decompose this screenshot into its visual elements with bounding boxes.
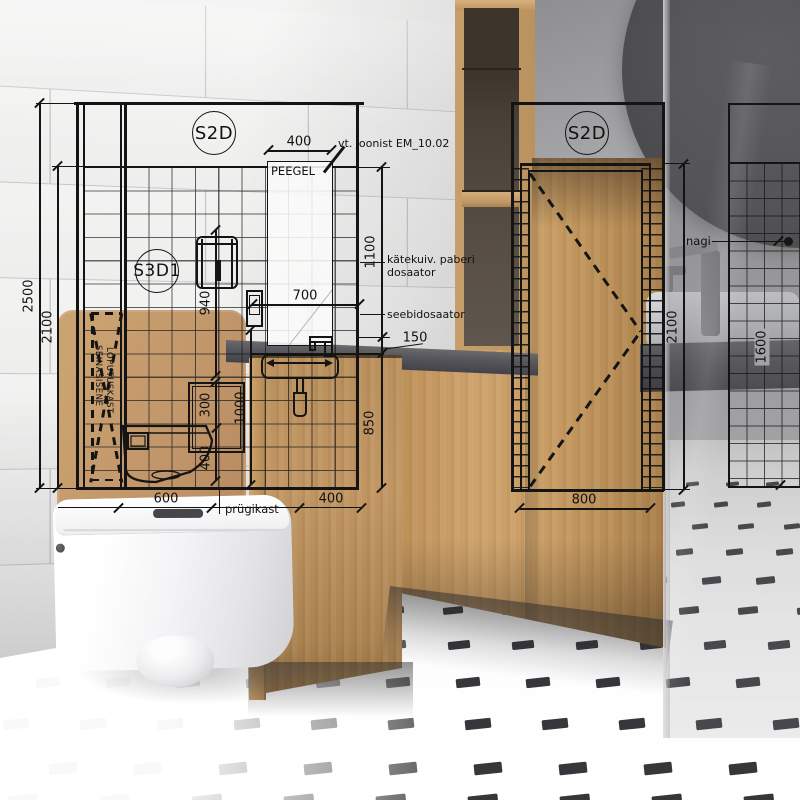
fr-border-left [728, 103, 730, 488]
towel-dispenser-label: kätekuiv. paberi dosaator [387, 253, 475, 279]
dim-ext-line [36, 488, 78, 489]
dim-800-line [519, 508, 650, 510]
ld-drain-pipe [296, 378, 298, 393]
ld-faucet-body [324, 341, 333, 357]
floor-dash [542, 718, 569, 731]
toilet-bowl-bottom [136, 634, 215, 688]
ld-drain-pipe [302, 378, 304, 393]
towel-dispenser-label-line1: kätekuiv. paberi [387, 253, 475, 266]
ld-paper-holder-top [198, 243, 236, 245]
dim-400-mirror-line [268, 150, 331, 152]
reference-note: vt. joonist EM_10.02 [338, 137, 449, 150]
floor-dash [456, 677, 481, 688]
cistern-label-line2: LOPUTUSKAST [102, 347, 115, 414]
ld-drain-trap [293, 392, 307, 417]
ld-border-left2 [83, 104, 85, 488]
dim-850-text: 850 [363, 411, 378, 436]
ld-tag-text: S2D [195, 123, 233, 144]
rd-doorframe-top [520, 163, 651, 166]
dim-ext-line [52, 166, 85, 167]
dim-300-text: 300 [199, 393, 214, 418]
dim-ext-line [358, 167, 390, 168]
ld-paper-holder-side [231, 239, 233, 287]
ld-paper-holder-side [201, 239, 203, 287]
rd-tag-circle: S2D [565, 111, 609, 155]
shelf-board [462, 68, 521, 85]
dim-800-text: 800 [572, 493, 597, 508]
dim-2100-door-line [683, 164, 685, 490]
mirror-reflection-line [276, 203, 333, 346]
dim-940-text: 940 [199, 291, 214, 316]
fr-border-bottom [728, 486, 800, 488]
dim-400-bottom-text: 400 [319, 492, 344, 507]
dim-ext-line [664, 163, 690, 164]
rd-border-right [662, 102, 665, 491]
dim-150-text: 150 [403, 331, 428, 346]
dim-ext-line [358, 337, 390, 338]
waste-bin-label: prügikast [225, 503, 279, 516]
floor-dash [559, 793, 590, 800]
dim-1000-text: 1000 [234, 391, 249, 424]
dim-1000-line [250, 330, 252, 485]
ld-faucet-spout [309, 341, 316, 351]
ld-sink-arrow-left [266, 359, 274, 367]
dim-300-400-line [215, 382, 217, 481]
dim-2100-door-text: 2100 [666, 310, 681, 343]
ld-border-right [356, 102, 359, 490]
rd-jamb-hatch-right [641, 168, 663, 488]
dim-ext-line [664, 489, 690, 490]
toilet-seam-line [63, 529, 285, 531]
dim-600-text: 600 [154, 492, 179, 507]
floor-dash [619, 718, 646, 731]
floor-dash [651, 793, 682, 800]
dim-940-line [215, 230, 217, 376]
ld-detail-tag-text: S3D1 [133, 261, 181, 281]
floor-dash [743, 793, 774, 800]
rd-doorframe-left [520, 163, 522, 489]
floor-dash [558, 762, 587, 776]
toilet-seat-slot [153, 509, 203, 518]
bathroom-elevation-render: PEEGEL S2D S3D1 vt. joonist EM_10.02 SEI… [0, 0, 800, 800]
rd-border-left [511, 102, 514, 491]
cistern-edge [91, 312, 122, 315]
dim-right-chain-line [381, 167, 383, 488]
floor-dash [467, 793, 498, 800]
toilet [53, 492, 303, 703]
rd-tag-text: S2D [568, 123, 606, 144]
ld-tag-circle: S2D [192, 111, 236, 155]
dim-ext-line [36, 103, 76, 104]
dim-2500-line [39, 103, 41, 488]
dim-700-text: 700 [293, 289, 318, 304]
rd-border-top [511, 102, 665, 105]
towel-dispenser-label-line2: dosaator [387, 266, 475, 279]
floor-dash [465, 718, 492, 731]
fr-grid-top-line [728, 162, 800, 164]
fr-border-top [728, 103, 800, 105]
ld-sink-level-line [272, 362, 326, 364]
ld-detail-tag-circle: S3D1 [135, 249, 179, 293]
dim-2100-text: 2100 [41, 310, 56, 343]
dim-400-mirror-text: 400 [287, 135, 312, 150]
floor-dash [728, 762, 757, 776]
dim-400-toilet-text: 400 [199, 446, 214, 471]
soap-dispenser-leader [360, 314, 385, 315]
ld-mirror [267, 161, 333, 346]
ld-sink-arrow-right [325, 359, 333, 367]
hook-label: nagi [686, 235, 711, 248]
dim-1600-text: 1600 [755, 328, 770, 365]
floor-dash [643, 762, 672, 776]
floor-dash [473, 762, 502, 776]
rd-doorframe-left2 [528, 170, 530, 489]
fr-mosaic-grid [729, 163, 800, 487]
ld-paper-roll-slot [216, 260, 221, 281]
dim-2100-line [57, 166, 59, 488]
ld-border-top [74, 102, 364, 105]
dim-700-line [252, 304, 359, 306]
hook-dot [784, 237, 793, 246]
dim-1100-text: 1100 [364, 235, 379, 268]
ld-border-left [76, 102, 79, 490]
soap-dispenser-label: seebidosaator [387, 308, 465, 321]
rd-doorframe-top2 [528, 170, 643, 172]
bin-leader-line [219, 488, 220, 514]
rd-border-bottom [511, 489, 664, 492]
mirror-label: PEEGEL [271, 165, 315, 178]
dim-2500-text: 2500 [22, 279, 37, 312]
rd-doorframe-right [649, 163, 651, 489]
